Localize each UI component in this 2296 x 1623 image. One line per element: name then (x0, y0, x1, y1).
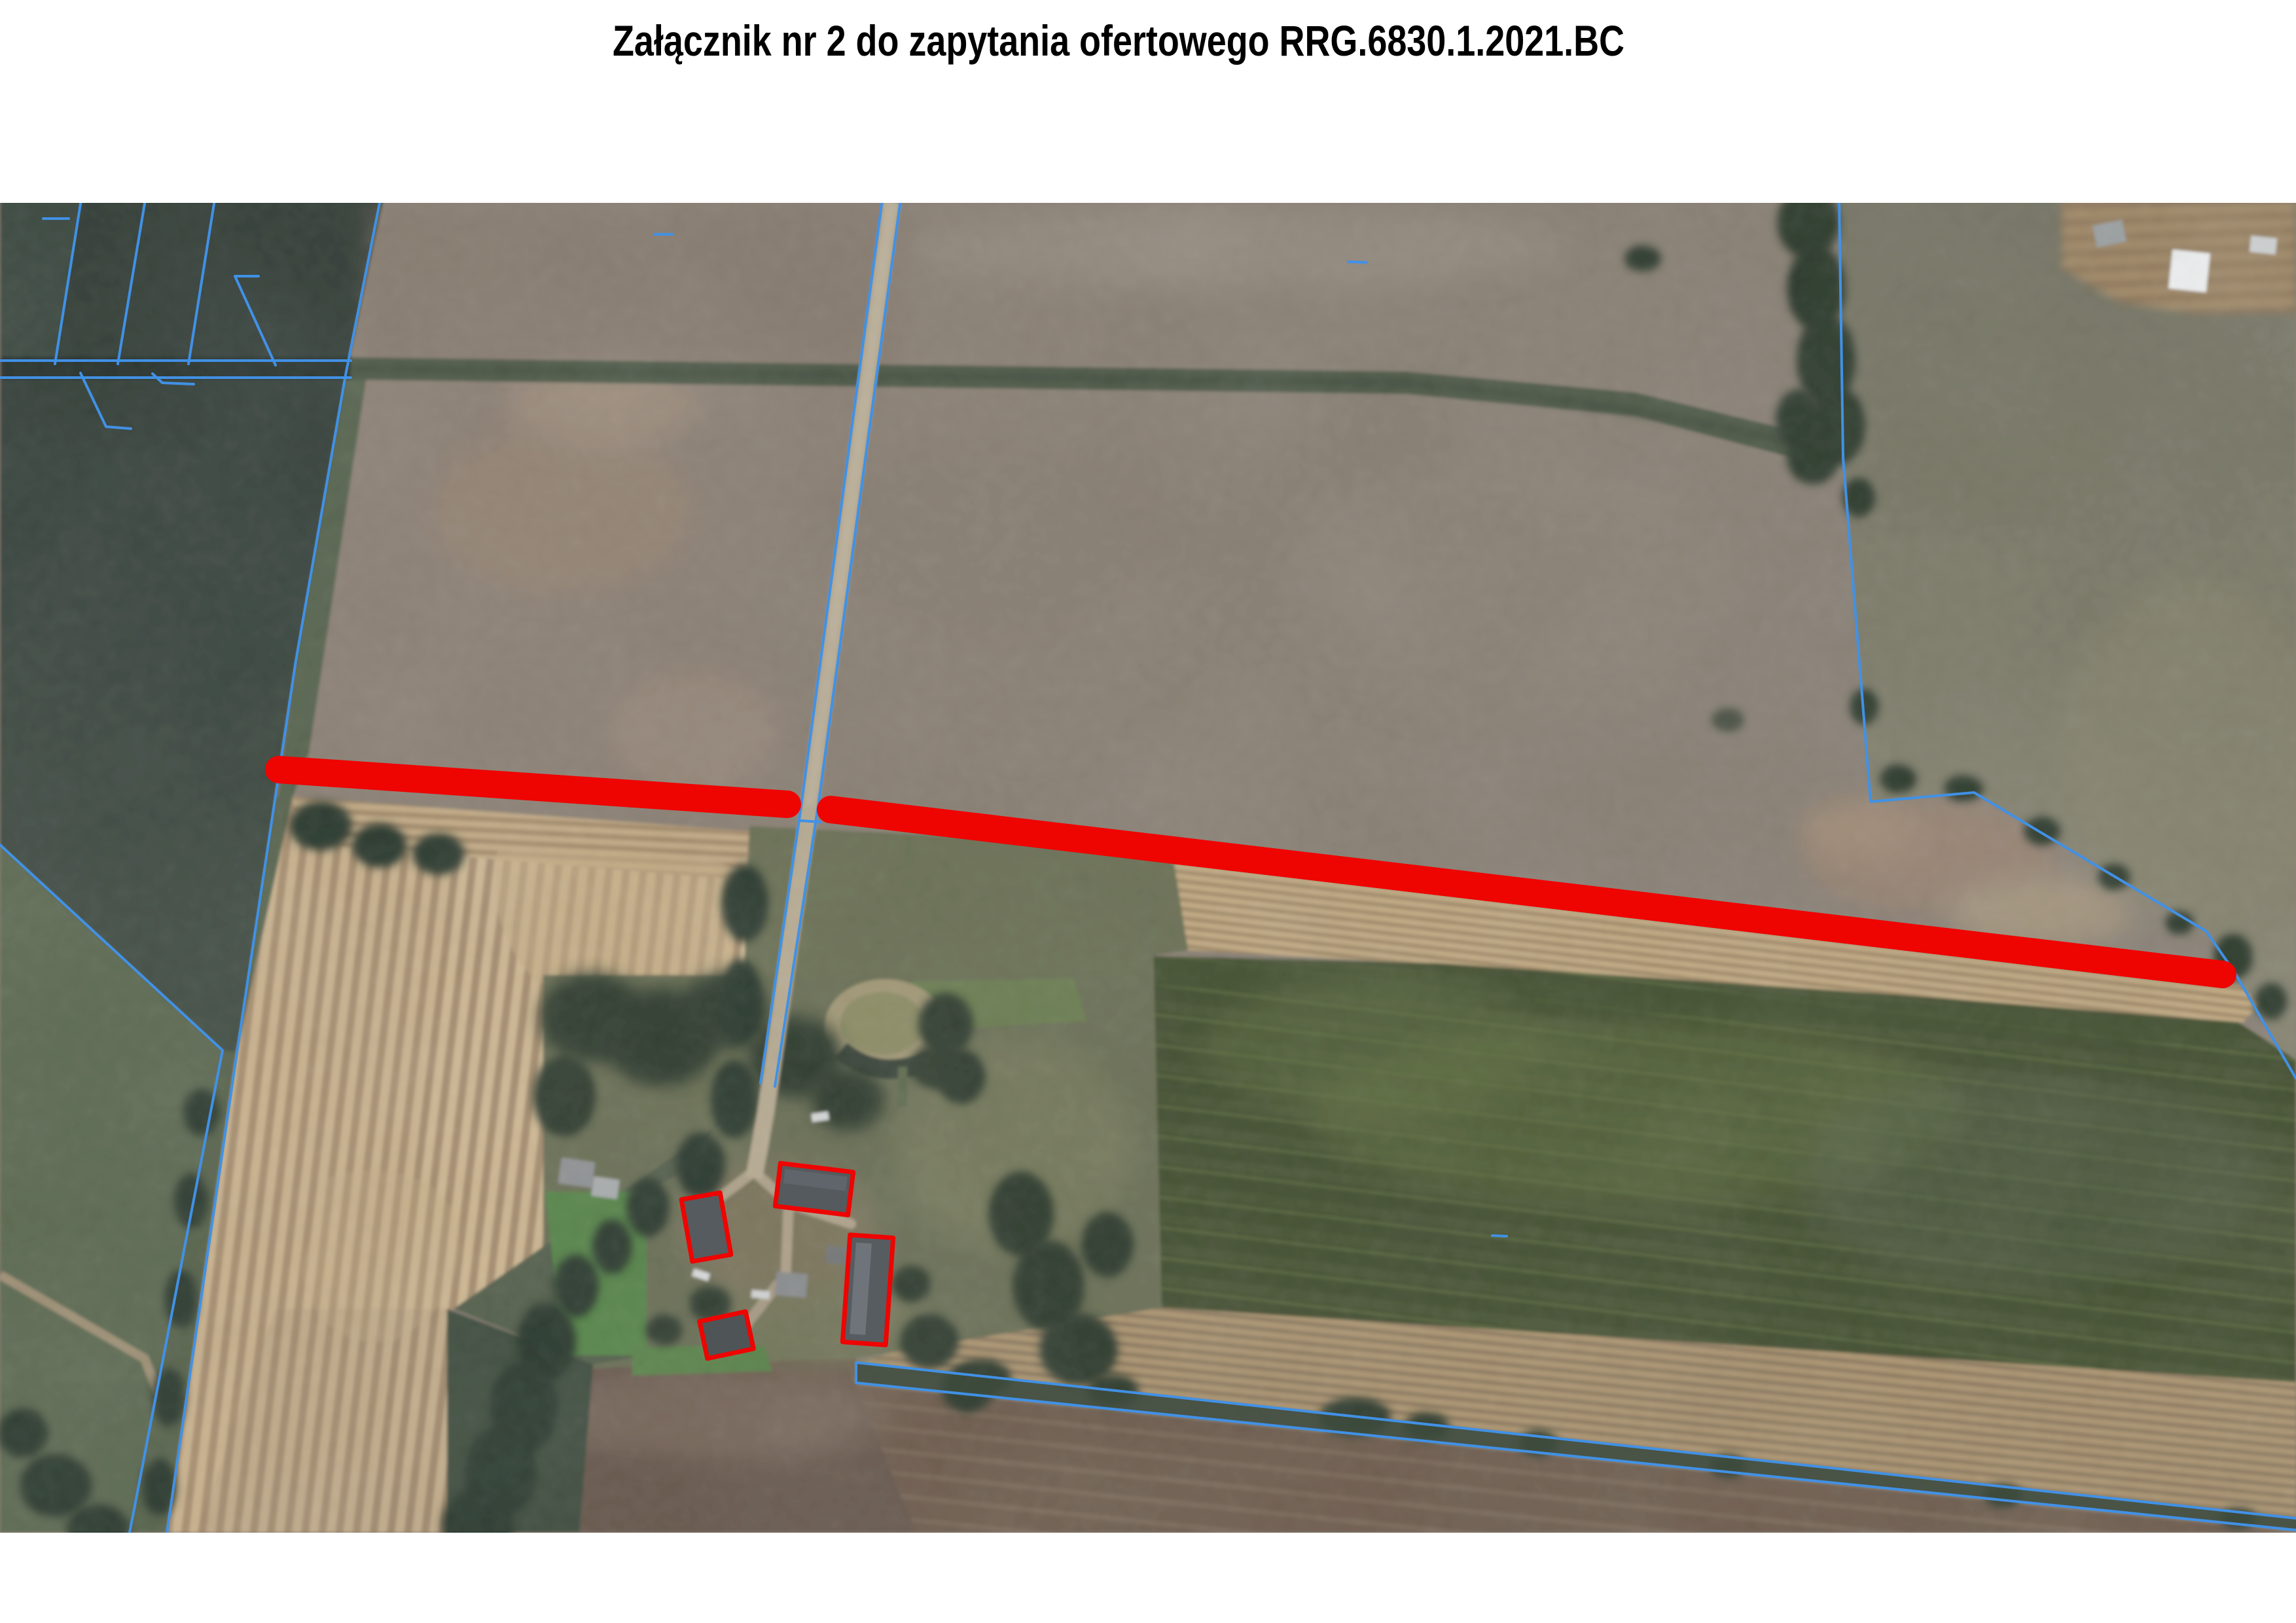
svg-text:Załącznik nr 2 do zapytania of: Załącznik nr 2 do zapytania ofertowego R… (613, 16, 1624, 65)
